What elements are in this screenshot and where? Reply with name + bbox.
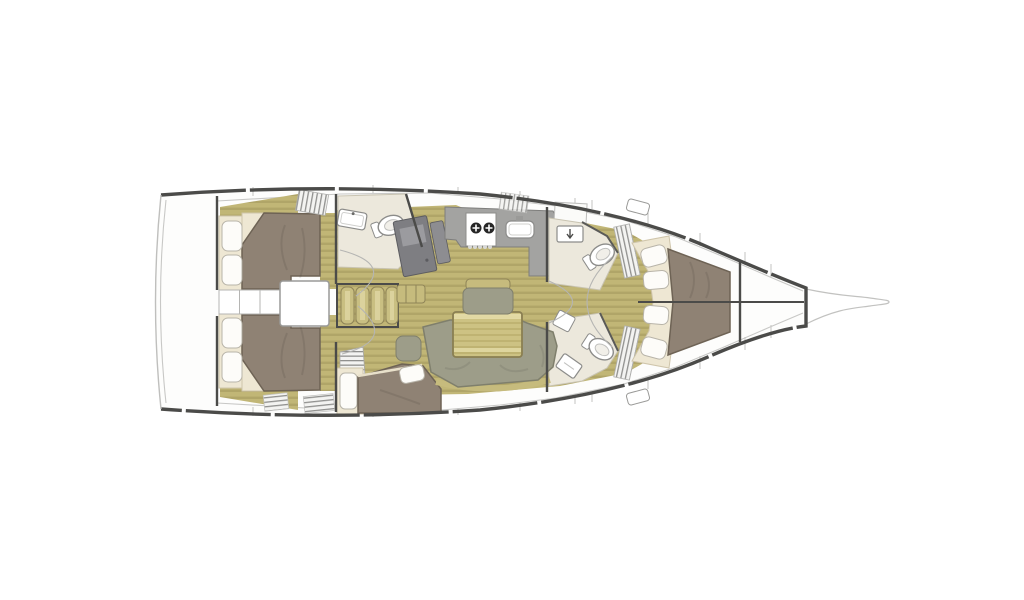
floor-strip xyxy=(220,381,298,410)
toilet xyxy=(370,212,407,241)
companionway-steps-frame xyxy=(337,284,398,327)
step-tread xyxy=(371,287,384,324)
stove-burner-icon xyxy=(471,223,482,234)
vanity-stool xyxy=(552,310,575,333)
owner-cabin xyxy=(626,198,730,405)
door-arc xyxy=(342,306,375,354)
sink xyxy=(555,353,582,379)
pillow xyxy=(222,255,242,285)
side-cushion xyxy=(643,270,669,290)
nav-station xyxy=(393,213,452,277)
saloon xyxy=(396,279,557,389)
louver-locker xyxy=(295,190,328,216)
louver-locker xyxy=(340,347,365,377)
berth-corner-shelf xyxy=(242,213,264,245)
galley-counter xyxy=(445,207,556,276)
floor-strip xyxy=(320,315,337,391)
chart-table-knob xyxy=(425,258,429,262)
armchair xyxy=(463,279,513,314)
floor-strip xyxy=(220,194,298,223)
sink xyxy=(557,226,583,242)
inner-deck-line-top xyxy=(217,193,803,291)
floor-strip xyxy=(320,213,337,289)
engine-compartment xyxy=(280,281,329,326)
door-arc xyxy=(340,250,374,296)
bowsprit xyxy=(806,289,889,324)
deck-louver-vents xyxy=(263,192,529,413)
chart-table xyxy=(393,215,437,276)
companionway-steps xyxy=(341,287,398,324)
chart-table-top xyxy=(399,224,426,246)
stove xyxy=(466,213,496,246)
berth-wrinkle xyxy=(281,325,304,378)
berth-wrinkle xyxy=(690,262,709,298)
settee-base-trim xyxy=(436,380,550,389)
bulkheads xyxy=(217,194,804,412)
aft-cabin-port xyxy=(219,190,329,292)
table-leaf-light xyxy=(454,348,521,352)
louver-vent xyxy=(263,393,289,411)
stove-burner-icon xyxy=(484,223,495,234)
transom-inner-line xyxy=(161,200,167,403)
head-floor xyxy=(549,313,618,386)
berth-wrinkle xyxy=(380,390,420,404)
side-bench xyxy=(397,285,425,303)
toilet xyxy=(581,240,618,273)
island-berth xyxy=(668,249,730,355)
head-floor xyxy=(338,194,421,269)
saloon-corridor-floor xyxy=(337,205,677,396)
berth xyxy=(358,364,441,413)
nav-seat xyxy=(430,220,451,264)
stowage-box-dividers xyxy=(240,290,261,314)
step-tread xyxy=(356,287,369,324)
stove-scallop-trim xyxy=(468,245,492,249)
deck-divider-ticks-top xyxy=(253,185,771,277)
companionway-area xyxy=(219,281,398,327)
deck-hatch xyxy=(626,388,650,405)
u-settee xyxy=(423,320,557,387)
sink xyxy=(337,209,368,231)
louver-locker xyxy=(614,326,640,380)
side-cushion xyxy=(639,244,668,269)
door-swing-arcs xyxy=(340,250,612,354)
head-wall xyxy=(582,222,618,253)
side-cushion xyxy=(639,336,668,361)
forward-head-starboard xyxy=(549,310,640,386)
aft-cabin-floor-strips xyxy=(220,194,337,410)
step-tread xyxy=(341,287,354,324)
door-arc xyxy=(549,281,573,323)
pillow xyxy=(340,373,357,409)
faucet-icon xyxy=(516,216,523,221)
double-berth xyxy=(242,213,320,289)
pillow xyxy=(222,221,242,251)
armchair-backrest xyxy=(466,279,510,290)
louver-vent xyxy=(303,393,335,413)
berth-headboard xyxy=(337,368,363,414)
fridge-cabinet xyxy=(553,202,587,246)
faucet-icon xyxy=(351,212,354,215)
armchair-cushion xyxy=(463,288,513,314)
door-arc xyxy=(587,257,612,347)
galley xyxy=(445,202,587,276)
deck-panel-lines xyxy=(161,185,804,417)
louver-locker xyxy=(614,224,640,278)
dining-table xyxy=(453,312,522,357)
louver-vent xyxy=(499,192,529,213)
inner-deck-line-bottom xyxy=(217,313,803,411)
deck-hatch xyxy=(626,198,650,215)
hull-toe-rail xyxy=(161,189,806,416)
table-leaf-light xyxy=(454,314,521,319)
yacht-floor-plan xyxy=(0,0,1024,600)
berth-wrinkle xyxy=(281,225,304,278)
stowage-boxes xyxy=(219,290,280,314)
galley-sink xyxy=(506,216,534,238)
transom-edge xyxy=(156,195,162,409)
pillow xyxy=(399,364,426,385)
bulkhead-line xyxy=(406,194,422,247)
head-wall xyxy=(600,313,618,351)
forward-head-port xyxy=(549,218,640,290)
aft-head xyxy=(337,194,421,269)
hull-deck-fill xyxy=(156,189,807,416)
step-highlights xyxy=(345,291,394,320)
pillow xyxy=(222,318,242,348)
berth-headboard xyxy=(219,312,246,388)
faucet-arrow-icon xyxy=(567,229,573,238)
head-floor xyxy=(549,218,618,290)
pillow xyxy=(222,352,242,382)
midship-berth xyxy=(337,347,441,414)
side-chair xyxy=(396,336,421,361)
berth-trim xyxy=(358,365,422,376)
double-berth xyxy=(242,315,320,391)
aft-cabin-starboard xyxy=(219,312,320,391)
settee-wrinkle xyxy=(445,345,544,371)
deck-divider-ticks-bottom xyxy=(253,325,771,417)
berth-headboard xyxy=(219,216,246,292)
side-cushion xyxy=(643,305,669,325)
step-tread xyxy=(386,287,398,324)
berth-corner-shelf xyxy=(242,359,264,391)
toilet xyxy=(580,331,617,364)
berth-surround xyxy=(632,236,678,368)
